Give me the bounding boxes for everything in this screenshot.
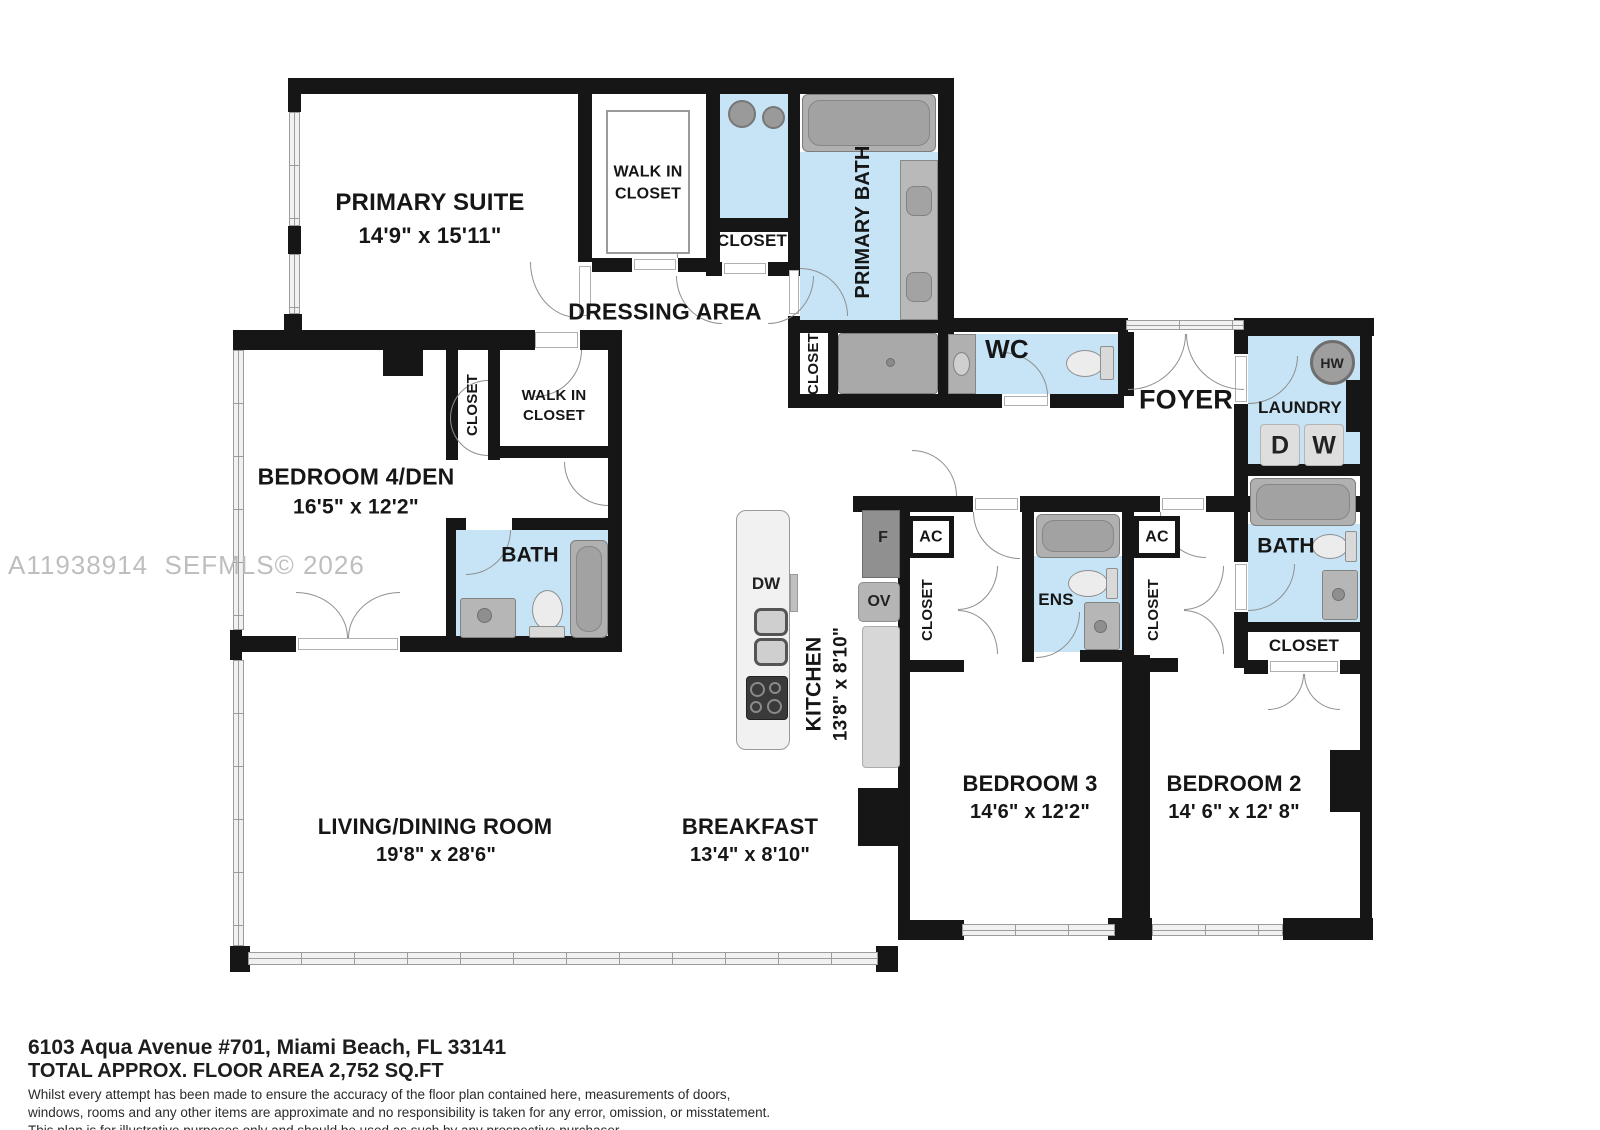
bath2-toilet-tank [1345,531,1357,562]
wall [288,226,301,254]
room-label-closet-bath2: CLOSET [1269,637,1339,655]
room-label-primary-bath: PRIMARY BATH [853,145,875,298]
room-label-primary-suite: PRIMARY SUITE [335,190,524,216]
dryer-label: D [1271,432,1289,461]
wall [1080,650,1122,662]
ac-label-bed2: AC [1145,528,1169,545]
wall [876,946,898,972]
address-line: 6103 Aqua Avenue #701, Miami Beach, FL 3… [28,1036,506,1060]
kitchen-sink [754,608,788,636]
door-jamb [634,259,676,270]
room-label-bath4: BATH [501,545,559,568]
room-label-breakfast: BREAKFAST [682,815,818,839]
door-arc [973,512,1020,559]
door-arc [958,566,998,610]
mls-watermark: A11938914 SEFMLS© 2026 [8,550,365,581]
burner [767,699,782,714]
entry-door-jamb [1126,320,1244,330]
wall [706,94,720,218]
bath2-bathtub [1250,478,1356,526]
wall [1346,380,1372,432]
room-dims-bedroom4: 16'5" x 12'2" [293,497,419,520]
room-label-walk-in-bed4: WALK IN [522,388,587,404]
disclaimer-line: windows, rooms and any other items are a… [28,1105,770,1120]
wall [938,318,1128,332]
primary-vanity-sink [906,272,932,302]
kitchen-counter [862,626,900,768]
burner [750,701,762,713]
island-tab [790,574,798,612]
wall [1244,660,1268,674]
wall [512,518,622,530]
floor-plan-page: PRIMARY SUITE 14'9" x 15'11" WALK IN CLO… [0,0,1600,1130]
room-label-bedroom3: BEDROOM 3 [962,772,1097,796]
window [962,924,1115,936]
window [248,952,878,965]
wc-toilet [1066,350,1104,377]
door-jamb [975,498,1018,510]
kitchen-sink [754,638,788,666]
floor-area-line: TOTAL APPROX. FLOOR AREA 2,752 SQ.FT [28,1060,444,1083]
fridge-label: F [878,529,888,547]
bath4-faucet [477,608,492,623]
wall [898,660,964,672]
door-jamb [298,638,398,650]
wall [608,330,622,462]
wall [1022,512,1034,662]
wall [788,94,800,268]
wall [706,262,722,276]
wall [383,350,423,376]
door-arc [1304,674,1340,710]
dishwasher-label: DW [752,574,780,594]
primary-bathtub [802,94,936,152]
wall [1050,394,1124,408]
water-heater-label: HW [1320,355,1343,371]
door-arc [912,450,957,496]
oven-label: OV [867,593,890,611]
wall [488,350,500,460]
door-arc [348,592,400,638]
wall [938,332,948,396]
room-label-foyer: FOYER [1139,385,1233,414]
wall [828,333,838,397]
room-label-dressing-area: DRESSING AREA [568,300,761,325]
disclaimer-line: This plan is for illustrative purposes o… [28,1123,622,1130]
room-label-bath2: BATH [1257,536,1315,559]
closet-label-bed4: CLOSET [465,374,481,436]
window [233,350,244,630]
room-label-ensuite: ENS [1038,591,1074,609]
washer-label: W [1312,432,1336,461]
ensuite-faucet [1094,620,1107,633]
door-jamb [1235,564,1247,610]
bath4-bathtub [570,540,608,638]
room-dims-bedroom3: 14'6" x 12'2" [970,802,1090,824]
room-dims-bedroom2: 14' 6" x 12' 8" [1168,802,1300,824]
wall [1022,650,1034,662]
wall [1244,622,1372,632]
room-label-closet-primary: CLOSET [717,232,787,250]
primary-vanity-sink [906,186,932,216]
disclaimer-line: Whilst every attempt has been made to en… [28,1087,730,1102]
door-arc [958,610,998,654]
room-dims-breakfast: 13'4" x 8'10" [690,845,810,867]
room-label-bedroom2: BEDROOM 2 [1166,772,1301,796]
window [289,254,300,314]
window [233,660,244,946]
door-arc [1184,566,1224,610]
wall [898,920,964,940]
wall [608,462,622,648]
bath4-toilet [532,590,563,630]
wall [1122,512,1134,662]
door-arc [296,592,348,638]
ensuite-toilet [1068,570,1108,597]
door-arc [1128,334,1186,390]
closet-label-bed2: CLOSET [1146,579,1162,641]
room-label-walk-in-closet-primary: WALK IN [614,163,683,180]
room-dims-living: 19'8" x 28'6" [376,845,496,867]
room-label-living: LIVING/DINING ROOM [318,815,553,839]
room-label-laundry: LAUNDRY [1258,399,1342,417]
burner [750,682,765,697]
room-label-hall-closet: CLOSET [806,333,822,395]
wc-toilet-tank [1100,346,1114,380]
room-dims-primary-suite: 14'9" x 15'11" [358,224,501,248]
ensuite-toilet-tank [1106,568,1118,599]
door-jamb [724,263,766,274]
door-jamb [1004,396,1048,406]
door-arc [564,462,608,506]
vessel-sink [728,100,756,128]
wall [1122,655,1150,922]
wall [1020,496,1160,512]
door-jamb [535,332,578,348]
wall [1283,918,1373,940]
door-arc [1186,334,1244,390]
wall [1244,318,1374,336]
wall [230,946,250,972]
room-label-walk-in-closet-primary: CLOSET [615,185,681,202]
vessel-sink [762,106,785,129]
ac-label-bed3: AC [919,528,943,545]
room-label-wc: WC [985,335,1029,363]
wall [800,320,940,333]
door-arc [1268,674,1304,710]
wall [1340,660,1372,674]
room-label-walk-in-bed4: CLOSET [523,408,585,424]
wall [446,518,456,648]
closet-label-bed3: CLOSET [920,579,936,641]
door-jamb [1162,498,1204,510]
wc-sink [953,352,970,376]
walk-in-closet-outline [606,110,690,254]
bath4-toilet-tank [529,626,565,638]
wall [233,330,535,350]
wall [232,636,296,652]
ensuite-bathtub [1036,514,1120,558]
wall [578,94,592,262]
shower-drain [886,358,895,367]
window [1152,924,1283,936]
wall [400,636,622,652]
wall [288,94,301,112]
room-label-bedroom4: BEDROOM 4/DEN [258,465,455,490]
bath2-toilet [1312,534,1348,559]
bath2-faucet [1332,588,1345,601]
wall [1330,750,1372,812]
door-jamb [1270,661,1338,672]
wall [592,258,632,272]
burner [769,682,781,694]
room-label-kitchen: KITCHEN [804,637,827,732]
room-dims-kitchen: 13'8" x 8'10" [832,627,853,741]
wall [788,394,1002,408]
wall [1234,404,1248,562]
door-arc [1184,610,1224,654]
wall [488,446,620,458]
window [289,112,300,226]
wall [858,788,910,846]
wall [288,78,954,94]
